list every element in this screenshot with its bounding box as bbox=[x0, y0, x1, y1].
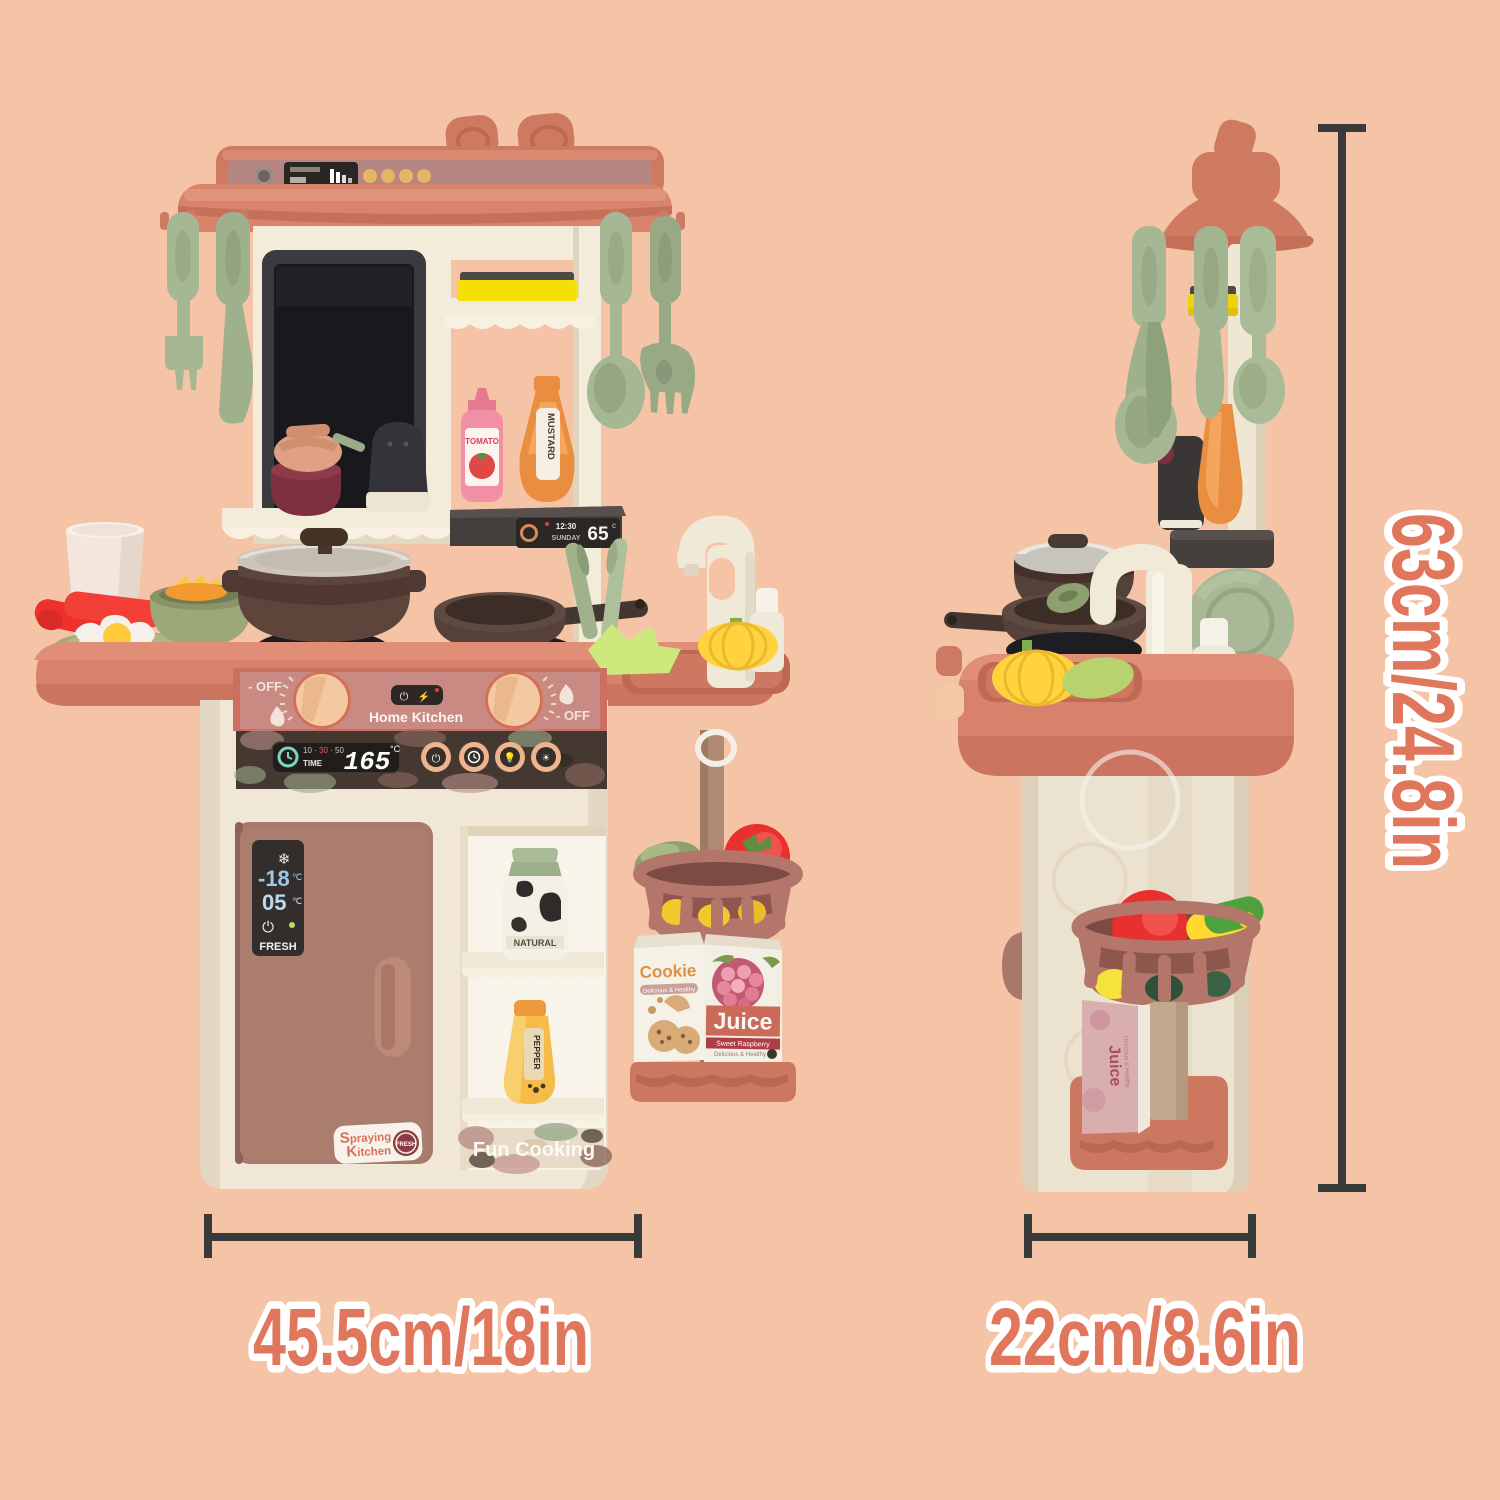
svg-text:TIME: TIME bbox=[303, 759, 323, 768]
svg-text:165: 165 bbox=[344, 747, 391, 777]
svg-text:⏻: ⏻ bbox=[262, 919, 274, 936]
svg-text:℃: ℃ bbox=[292, 872, 302, 882]
svg-text:Juice: Juice bbox=[1105, 1045, 1123, 1087]
svg-text:12:30: 12:30 bbox=[556, 522, 577, 531]
svg-text:Sweet Raspberry: Sweet Raspberry bbox=[716, 1041, 770, 1049]
svg-text:°C: °C bbox=[390, 744, 401, 754]
svg-text:10 · 30 · 50: 10 · 30 · 50 bbox=[303, 746, 344, 755]
svg-text:Delicious & Healthy: Delicious & Healthy bbox=[714, 1052, 766, 1058]
svg-text:💡: 💡 bbox=[504, 751, 516, 764]
svg-text:⏻: ⏻ bbox=[432, 753, 441, 765]
svg-text:FRESH: FRESH bbox=[259, 941, 296, 953]
svg-text:c: c bbox=[612, 521, 616, 530]
svg-text:45.5cm/18in: 45.5cm/18in bbox=[253, 1292, 589, 1383]
svg-text:05: 05 bbox=[262, 890, 286, 915]
svg-text:Juice: Juice bbox=[713, 1007, 772, 1034]
svg-text:⏻: ⏻ bbox=[400, 691, 409, 703]
svg-text:MUSTARD: MUSTARD bbox=[545, 413, 556, 460]
svg-text:⚡: ⚡ bbox=[418, 690, 430, 703]
svg-text:- OFF: - OFF bbox=[248, 679, 282, 694]
svg-text:SUNDAY: SUNDAY bbox=[552, 535, 581, 542]
svg-text:22cm/8.6in: 22cm/8.6in bbox=[989, 1292, 1301, 1383]
svg-text:-18: -18 bbox=[258, 866, 290, 891]
svg-text:NATURAL: NATURAL bbox=[514, 938, 557, 948]
svg-text:65: 65 bbox=[587, 524, 609, 545]
svg-text:- OFF: - OFF bbox=[556, 708, 590, 723]
svg-text:Fun Cooking: Fun Cooking bbox=[473, 1139, 595, 1161]
svg-text:℃: ℃ bbox=[292, 896, 302, 906]
svg-text:FRESH: FRESH bbox=[396, 1142, 416, 1148]
svg-text:Cookie: Cookie bbox=[639, 961, 696, 982]
svg-text:63cm/24.8in: 63cm/24.8in bbox=[1374, 513, 1473, 869]
svg-text:TOMATO: TOMATO bbox=[465, 437, 499, 446]
svg-text:PEPPER: PEPPER bbox=[532, 1035, 542, 1070]
svg-text:☀: ☀ bbox=[542, 753, 551, 764]
svg-text:Home Kitchen: Home Kitchen bbox=[369, 709, 463, 725]
